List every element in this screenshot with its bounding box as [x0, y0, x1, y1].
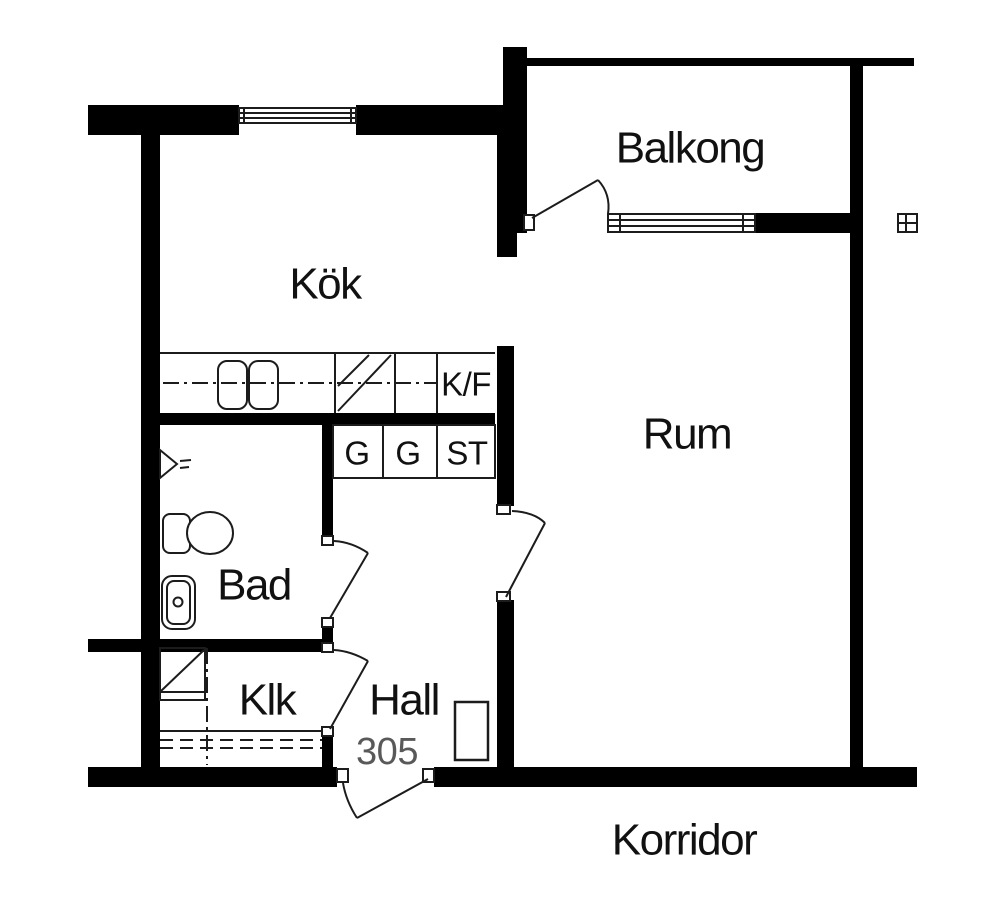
rum-door	[506, 511, 545, 597]
entry-door	[343, 779, 428, 818]
klk-door-frame-top	[322, 643, 333, 652]
wall-kitchen-bath-divider	[141, 413, 495, 425]
apartment-number: 305	[356, 731, 418, 773]
label-wardrobe-2: G	[395, 435, 420, 472]
wall-bad-klk-divider	[88, 639, 332, 652]
label-cleaning-closet: ST	[446, 435, 488, 472]
balcony-window	[608, 214, 755, 232]
floor-plan-drawing: Kök Balkong Rum Bad Klk Hall Korridor K/…	[0, 0, 998, 900]
room-labels: Kök Balkong Rum Bad Klk Hall Korridor	[217, 124, 764, 865]
entry-door-frame-left	[337, 769, 348, 782]
label-wardrobe-1: G	[344, 435, 369, 472]
balcony-door	[532, 180, 609, 218]
rum-door-frame-top	[497, 505, 510, 514]
wall-hall-rum-lower	[497, 600, 514, 767]
bad-door-frame-top	[322, 536, 333, 545]
shower-symbol	[160, 450, 191, 478]
walls	[88, 47, 917, 787]
wall-left-exterior	[141, 105, 160, 787]
wall-bottom-right	[434, 767, 917, 787]
floor-plan-page: Kök Balkong Rum Bad Klk Hall Korridor K/…	[0, 0, 998, 900]
wall-klk-right-lower	[322, 736, 333, 767]
label-fridge-freezer: K/F	[441, 366, 491, 403]
label-rum: Rum	[643, 410, 731, 459]
washbasin-symbol	[162, 576, 195, 629]
label-kok: Kök	[289, 260, 363, 309]
wall-hall-rum-upper	[497, 346, 514, 506]
closet-cabinet-diagonal	[161, 650, 204, 691]
hall-cabinet	[455, 702, 488, 760]
wall-top-right	[356, 105, 503, 135]
label-balkong: Balkong	[616, 124, 765, 173]
toilet-symbol	[163, 512, 233, 554]
bad-door-frame-bottom	[322, 618, 333, 627]
wall-top-left	[88, 105, 239, 135]
label-klk: Klk	[239, 676, 298, 725]
wall-bottom-left	[88, 767, 337, 787]
klk-door	[330, 650, 368, 729]
wall-right-exterior	[850, 58, 863, 787]
wall-bad-right-upper	[322, 413, 333, 536]
sink-symbol	[218, 361, 278, 409]
wall-balcony-left-lower	[497, 133, 517, 257]
bad-door	[330, 541, 368, 618]
label-hall: Hall	[369, 676, 439, 725]
wall-balcony-front	[755, 213, 850, 233]
kitchen-window	[239, 108, 356, 123]
label-korridor: Korridor	[612, 816, 757, 865]
side-window	[898, 214, 917, 232]
label-bad: Bad	[217, 561, 291, 610]
